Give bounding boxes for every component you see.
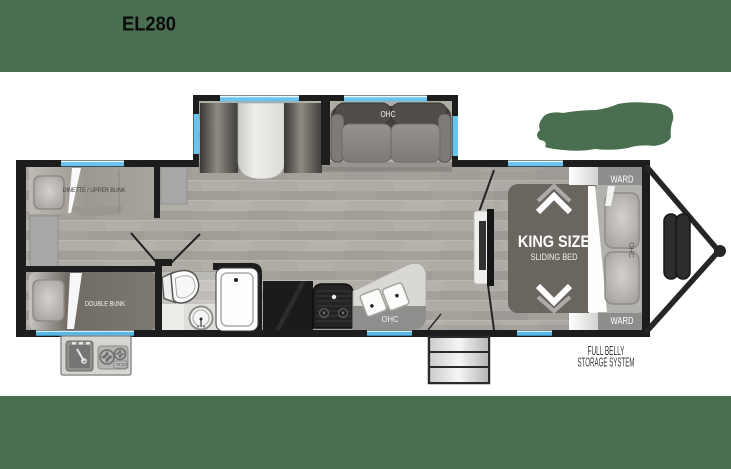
svg-text:WARD: WARD (611, 315, 634, 327)
svg-text:OHC: OHC (381, 109, 396, 119)
svg-text:SLIDING BED: SLIDING BED (531, 251, 578, 262)
svg-text:STORAGE SYSTEM: STORAGE SYSTEM (578, 356, 635, 370)
svg-text:KING SIZE: KING SIZE (518, 233, 590, 251)
svg-text:OHC: OHC (382, 315, 399, 324)
svg-text:OHC: OHC (627, 242, 634, 258)
svg-text:WARD: WARD (611, 174, 634, 186)
svg-text:DINETTE / UPPER BUNK: DINETTE / UPPER BUNK (63, 188, 126, 195)
svg-text:EL280: EL280 (122, 14, 176, 36)
svg-text:DOUBLE BUNK: DOUBLE BUNK (85, 300, 126, 308)
